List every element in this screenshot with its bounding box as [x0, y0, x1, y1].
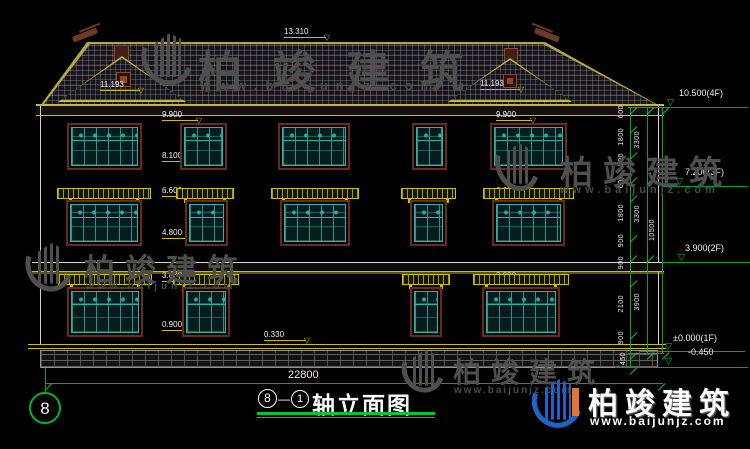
axis-line: [45, 368, 46, 392]
window-awning: [176, 188, 234, 199]
dim-value: 900: [618, 256, 625, 269]
watermark-url: www.baijunjz.com: [200, 78, 440, 93]
watermark-logo-icon: [26, 240, 72, 292]
eave-level-label-right: 9.900: [496, 110, 532, 121]
overall-width-dim: 22800: [288, 369, 319, 381]
dim-value: 1800: [618, 204, 625, 222]
dim-chain-line: [662, 107, 663, 353]
dim-value: 3300: [634, 205, 641, 223]
plinth-line: [28, 344, 666, 349]
window: [410, 200, 447, 246]
window: [410, 287, 442, 337]
title-underline: [257, 412, 435, 415]
window-awning: [401, 188, 456, 199]
gable-level-label-left: 11.193: [100, 80, 140, 91]
dim-value: 3900: [634, 293, 641, 311]
company-logo-url: www.baijunjz.com: [590, 414, 726, 428]
title-dash: —: [278, 392, 290, 406]
dim-tick: [623, 273, 638, 288]
title-axis-start-bubble: 8: [258, 389, 277, 408]
upturned-eave-ornament-left: [72, 27, 98, 42]
plinth-label: 0.330: [264, 330, 306, 341]
dim-value: 450: [620, 352, 627, 365]
dim-value: 2100: [618, 295, 625, 313]
level-triangle-icon: ▽: [665, 342, 672, 351]
dim-value: 600: [618, 105, 625, 118]
level-value: 10.500(4F): [679, 88, 723, 98]
watermark-logo-icon: [496, 140, 538, 192]
upturned-eave-ornament-right: [534, 27, 560, 42]
title-axis-end-bubble: 1: [291, 390, 309, 408]
window: [66, 200, 142, 246]
cad-elevation-drawing: 13.310 11.193 11.193 9.900 9.900 8.100 8…: [0, 0, 750, 449]
level-line: [662, 107, 748, 108]
level-value: -0.450: [688, 347, 714, 357]
watermark-logo-icon: [402, 347, 444, 393]
dim-value: 10500: [649, 219, 656, 241]
eave-level-label-left: 9.900: [162, 110, 198, 121]
company-logo-icon: [532, 376, 582, 428]
window: [278, 123, 350, 170]
level-line: [615, 367, 748, 368]
window: [185, 200, 228, 246]
window: [180, 123, 227, 170]
window-awning: [271, 188, 359, 199]
window: [67, 123, 142, 170]
dim-value: 1800: [618, 128, 625, 146]
window: [182, 287, 230, 337]
dim-value: 900: [618, 331, 625, 344]
wall-edge-left: [40, 106, 41, 346]
dim-tick: [640, 248, 655, 263]
window-awning: [402, 274, 450, 285]
level-triangle-icon: ▽: [665, 357, 672, 366]
wall-edge-right: [658, 106, 659, 346]
level-value: 3.900(2F): [685, 243, 724, 253]
level-value: ±0.000(1F): [673, 333, 717, 343]
watermark-url: www.baijunjz.com: [560, 184, 719, 196]
window: [67, 287, 143, 337]
dim-chain-line: [647, 107, 648, 353]
watermark-url: www.baijunjz.com: [86, 281, 236, 292]
watermark-logo-icon: [142, 30, 192, 86]
window: [280, 200, 350, 246]
dim-value: 900: [618, 234, 625, 247]
main-eave-band: [36, 104, 664, 116]
title-underline-thin: [257, 417, 435, 418]
window: [492, 200, 565, 246]
window-awning: [473, 274, 569, 285]
level-triangle-icon: ▽: [667, 98, 674, 107]
axis-bubble: 8: [29, 392, 61, 424]
window: [482, 287, 560, 337]
level-line: [662, 262, 750, 263]
window: [412, 123, 447, 170]
window-awning: [57, 188, 151, 199]
level-triangle-icon: ▽: [678, 253, 685, 262]
